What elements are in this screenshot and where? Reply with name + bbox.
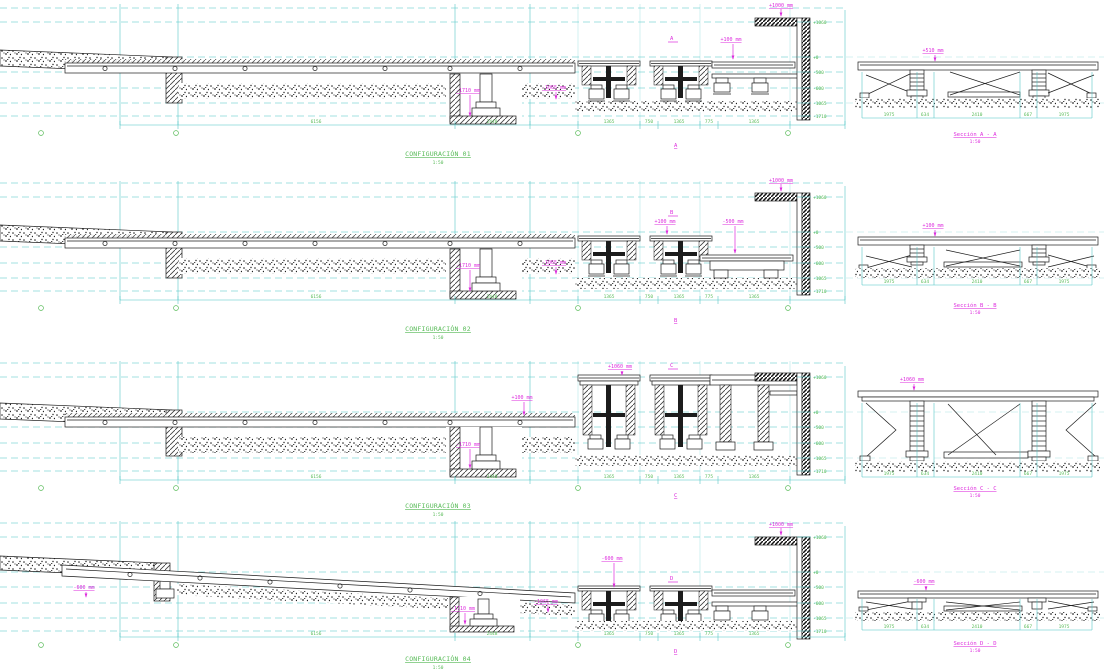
dim-value: 775 xyxy=(705,631,713,637)
section-cut-mark-bottom: B xyxy=(674,318,678,324)
config-title: CONFIGURACIÓN 02 xyxy=(405,324,471,333)
dim-value: 1975 xyxy=(1059,279,1070,285)
dim-value: 2410 xyxy=(972,624,983,630)
config-scale: 1:50 xyxy=(433,665,444,671)
elevation-label: -1710 xyxy=(813,114,827,120)
config-title: CONFIGURACIÓN 03 xyxy=(405,501,471,510)
section-cut-mark-top: C xyxy=(670,363,673,369)
config-02-drawing: +1060 +0 -500 -600 -1065 -1710 6156 2448… xyxy=(0,178,1104,341)
level-label-deck: +100 mm xyxy=(720,37,741,43)
elevation-label: -1065 xyxy=(813,616,827,622)
section-scale: 1:50 xyxy=(970,493,981,499)
level-label-wall-top: +1000 mm xyxy=(769,3,793,9)
level-label-street: +100 mm xyxy=(511,395,532,401)
dim-value: 1365 xyxy=(604,474,615,480)
dim-value: 6156 xyxy=(311,474,322,480)
section-cut-mark-top: D xyxy=(670,576,673,582)
dim-value: 2410 xyxy=(972,112,983,118)
level-label-pit: -1710 mm xyxy=(456,263,480,269)
elevation-label: +1060 xyxy=(813,195,827,201)
dim-value: 2448 xyxy=(487,631,498,637)
dim-value: 1365 xyxy=(749,119,760,125)
level-label-subfloor: -1065 mm xyxy=(534,599,558,605)
dim-value: 775 xyxy=(705,294,713,300)
section-title: Sección B - B xyxy=(953,302,997,309)
elevation-label: +0 xyxy=(813,410,819,416)
dim-value: 1975 xyxy=(884,279,895,285)
level-label-edge: -600 mm xyxy=(73,585,94,591)
dim-value: 750 xyxy=(645,474,653,480)
level-label-pit: -1710 mm xyxy=(451,606,475,612)
elevation-label: -1065 xyxy=(813,456,827,462)
dim-value: 750 xyxy=(645,294,653,300)
cad-sheet: +1060 +0 -500 -600 -1065 -1710 6156 2448… xyxy=(0,0,1104,672)
level-label-ramp: -600 mm xyxy=(601,556,622,562)
dim-value: 2410 xyxy=(972,471,983,477)
dim-value: 1975 xyxy=(884,471,895,477)
elevation-label: -600 xyxy=(813,601,824,607)
dim-value: 1365 xyxy=(749,294,760,300)
dim-value: 1975 xyxy=(1059,624,1070,630)
elevation-label: -600 xyxy=(813,261,824,267)
dim-value: 667 xyxy=(1024,279,1032,285)
dim-value: 634 xyxy=(921,279,929,285)
elevation-label: -600 xyxy=(813,86,824,92)
section-scale: 1:50 xyxy=(970,310,981,316)
dim-value: 1365 xyxy=(604,631,615,637)
dim-value: 2448 xyxy=(487,119,498,125)
elevation-label: -1710 xyxy=(813,469,827,475)
dim-value: 1365 xyxy=(674,631,685,637)
elevation-label: -1065 xyxy=(813,101,827,107)
section-b-b-drawing: +100 mm 1975 634 2410 667 1975 Sección B… xyxy=(855,223,1100,316)
dim-value: 2448 xyxy=(487,294,498,300)
level-label-bench: -500 mm xyxy=(722,219,743,225)
config-03-drawing: +1060 +0 -500 -600 -1065 -1710 6156 2448… xyxy=(0,361,1104,518)
section-cut-mark-top: A xyxy=(670,36,674,42)
elevation-label: +1060 xyxy=(813,20,827,26)
dim-value: 2410 xyxy=(972,279,983,285)
section-level-label: -600 mm xyxy=(913,579,934,585)
elevation-label: -600 xyxy=(813,441,824,447)
config-scale: 1:50 xyxy=(433,160,444,166)
dim-value: 1365 xyxy=(749,631,760,637)
dim-value: 1365 xyxy=(604,294,615,300)
elevation-label: -500 xyxy=(813,425,824,431)
section-d-d-drawing: -600 mm 1975 634 2410 667 1975 Sección D… xyxy=(855,579,1100,654)
config-title: CONFIGURACIÓN 01 xyxy=(405,149,471,158)
elevation-label: +1060 xyxy=(813,375,827,381)
dim-value: 667 xyxy=(1024,112,1032,118)
section-scale: 1:50 xyxy=(970,139,981,145)
dim-value: 634 xyxy=(921,624,929,630)
drawing-canvas: +1060 +0 -500 -600 -1065 -1710 6156 2448… xyxy=(0,0,1104,672)
dim-value: 667 xyxy=(1024,624,1032,630)
section-level-label: +1060 mm xyxy=(900,377,924,383)
config-title: CONFIGURACIÓN 04 xyxy=(405,654,471,663)
level-label-wall-top: +1000 mm xyxy=(769,522,793,528)
config-scale: 1:50 xyxy=(433,512,444,518)
level-label-pit: -1710 mm xyxy=(456,442,480,448)
dim-value: 775 xyxy=(705,119,713,125)
elevation-label: -500 xyxy=(813,585,824,591)
section-title: Sección D - D xyxy=(953,640,996,647)
elevation-label: -500 xyxy=(813,70,824,76)
dim-value: 1975 xyxy=(884,112,895,118)
elevation-label: +1060 xyxy=(813,535,827,541)
dim-value: 1975 xyxy=(1059,112,1070,118)
level-label-pit: -1710 mm xyxy=(456,88,480,94)
dim-value: 1975 xyxy=(884,624,895,630)
dim-value: 634 xyxy=(921,112,929,118)
elevation-label: -1710 xyxy=(813,629,827,635)
dim-value: 2448 xyxy=(487,474,498,480)
config-scale: 1:50 xyxy=(433,335,444,341)
dim-value: 1365 xyxy=(604,119,615,125)
elevation-label: +0 xyxy=(813,55,819,61)
dim-value: 1975 xyxy=(1059,471,1070,477)
section-level-label: +510 mm xyxy=(922,48,943,54)
dim-value: 6156 xyxy=(311,631,322,637)
section-cut-mark-top: B xyxy=(670,210,674,216)
dim-value: 667 xyxy=(1024,471,1032,477)
section-cut-mark-bottom: A xyxy=(674,143,678,149)
dim-value: 775 xyxy=(705,474,713,480)
level-label-deck: +1060 mm xyxy=(608,364,632,370)
dim-value: 750 xyxy=(645,119,653,125)
level-label-subfloor: -1065 mm xyxy=(542,85,566,91)
elevation-label: -500 xyxy=(813,245,824,251)
section-a-a-drawing: +510 mm 1975 634 2410 667 1975 Sección A… xyxy=(855,48,1100,145)
level-label-subfloor: -1065 mm xyxy=(542,260,566,266)
dim-value: 750 xyxy=(645,631,653,637)
level-label-wall-top: +1000 mm xyxy=(769,178,793,184)
level-label-deck: +100 mm xyxy=(654,219,675,225)
section-title: Sección C - C xyxy=(953,485,996,492)
dim-value: 1365 xyxy=(674,474,685,480)
config-01-drawing: +1060 +0 -500 -600 -1065 -1710 6156 2448… xyxy=(0,3,1104,166)
section-cut-mark-bottom: D xyxy=(674,649,677,655)
section-cut-mark-bottom: C xyxy=(674,493,677,499)
section-scale: 1:50 xyxy=(970,648,981,654)
section-c-c-drawing: +1060 mm 1975 634 2410 667 1975 Sección … xyxy=(855,377,1100,499)
section-title: Sección A - A xyxy=(953,131,997,138)
elevation-label: -1065 xyxy=(813,276,827,282)
dim-value: 1365 xyxy=(674,294,685,300)
dim-value: 1365 xyxy=(674,119,685,125)
dim-value: 634 xyxy=(921,471,929,477)
section-level-label: +100 mm xyxy=(922,223,943,229)
dim-value: 6156 xyxy=(311,294,322,300)
elevation-label: +0 xyxy=(813,230,819,236)
elevation-label: +0 xyxy=(813,570,819,576)
elevation-label: -1710 xyxy=(813,289,827,295)
dim-value: 6156 xyxy=(311,119,322,125)
dim-value: 1365 xyxy=(749,474,760,480)
